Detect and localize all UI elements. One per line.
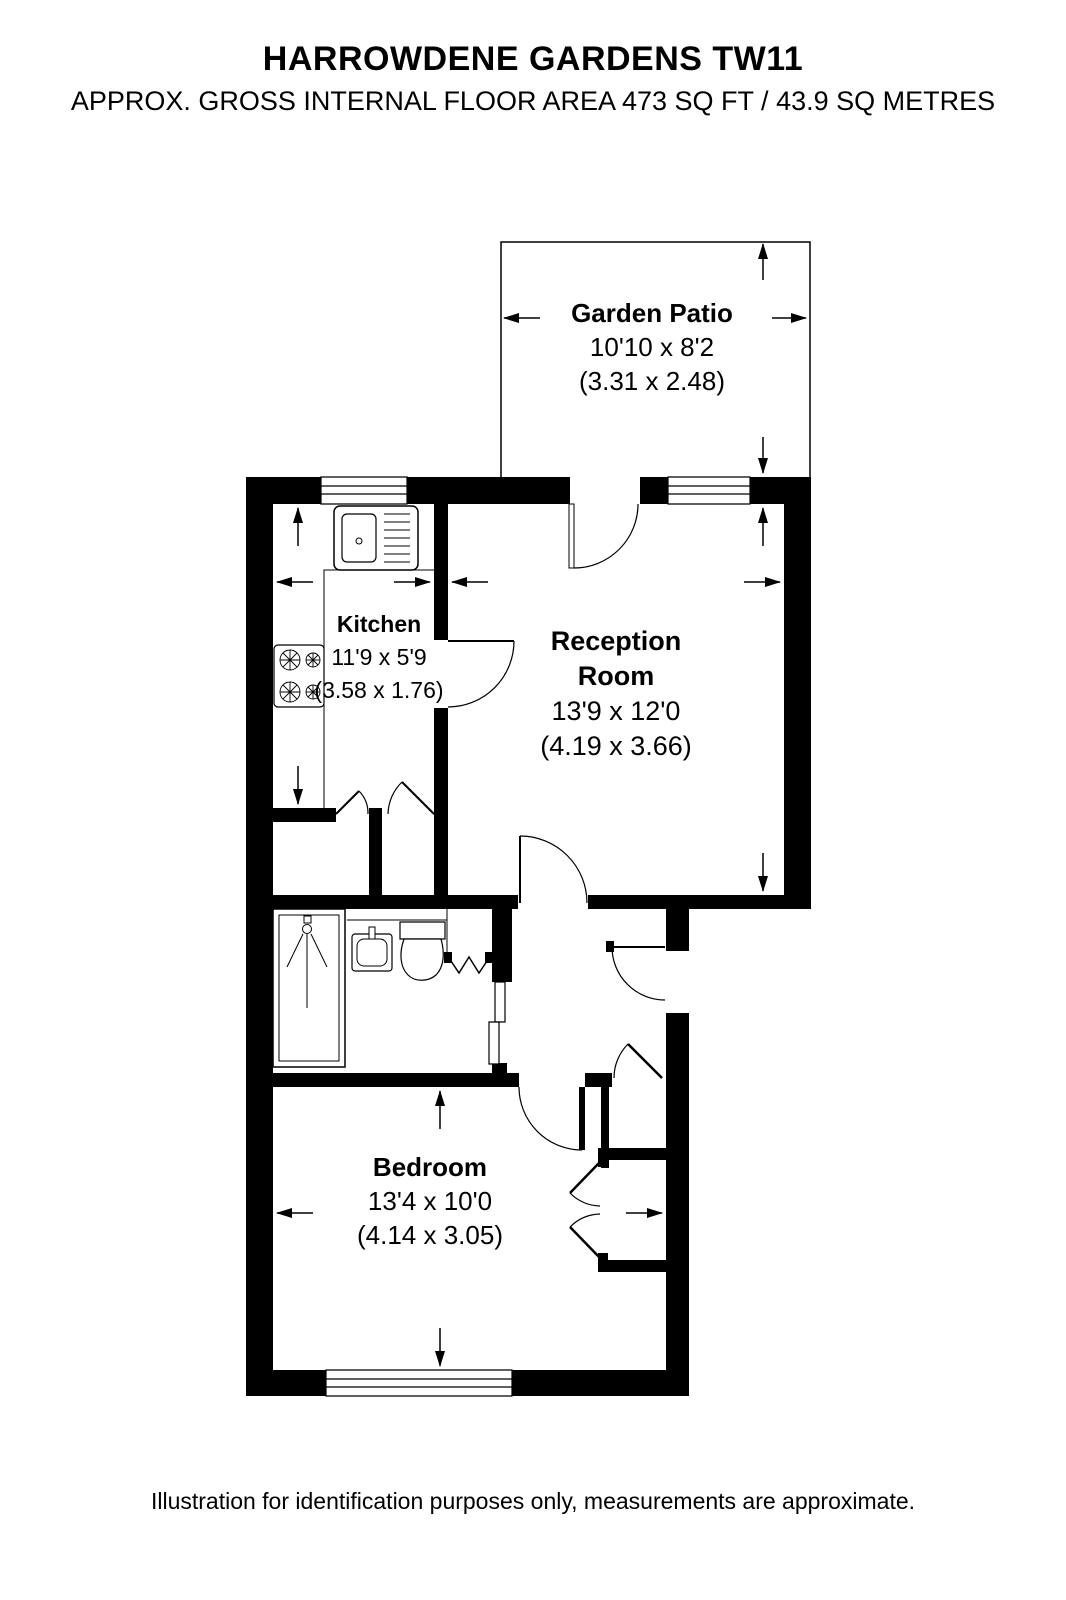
hall-cupboard-door — [614, 1044, 662, 1078]
kitchen-sink-icon — [334, 506, 418, 570]
wardrobe-door-lower — [570, 1214, 600, 1258]
wash-basin-icon — [352, 927, 392, 971]
bedroom-size-ft: 13'4 x 10'0 — [357, 1184, 503, 1218]
bedroom-window — [326, 1370, 512, 1396]
kitchen-cupboard-door-left — [336, 791, 368, 814]
front-door — [612, 947, 665, 1000]
wardrobe-door-upper — [570, 1162, 600, 1206]
room-label-kitchen: Kitchen 11'9 x 5'9 (3.58 x 1.76) — [269, 608, 489, 707]
hall-reception-door — [520, 836, 587, 903]
garden-patio-size-ft: 10'10 x 8'2 — [571, 330, 733, 364]
kitchen-name: Kitchen — [269, 608, 489, 641]
toilet-icon — [400, 922, 445, 980]
kitchen-window — [321, 477, 407, 504]
kitchen-size-ft: 11'9 x 5'9 — [269, 641, 489, 674]
garden-patio-size-m: (3.31 x 2.48) — [571, 364, 733, 398]
bathroom-bifold-door — [447, 909, 489, 973]
garden-patio-name: Garden Patio — [571, 296, 733, 330]
reception-room-size-ft: 13'9 x 12'0 — [524, 694, 709, 729]
reception-room-size-m: (4.19 x 3.66) — [524, 729, 709, 764]
disclaimer-text: Illustration for identification purposes… — [0, 1488, 1066, 1515]
bedroom-name: Bedroom — [357, 1150, 503, 1184]
reception-room-name: Reception Room — [524, 624, 709, 694]
kitchen-size-m: (3.58 x 1.76) — [269, 674, 489, 707]
bathroom-sliding-door — [489, 982, 505, 1064]
room-label-reception-room: Reception Room 13'9 x 12'0 (4.19 x 3.66) — [524, 624, 709, 764]
kitchen-cupboard-door-right — [388, 782, 434, 814]
room-label-garden-patio: Garden Patio 10'10 x 8'2 (3.31 x 2.48) — [571, 296, 733, 398]
bedroom-size-m: (4.14 x 3.05) — [357, 1218, 503, 1252]
bedroom-door — [519, 1087, 582, 1150]
shower-icon — [273, 909, 345, 1067]
reception-window — [668, 477, 750, 504]
patio-door — [569, 504, 638, 568]
floorplan-drawing — [0, 0, 1066, 1600]
floorplan-sheet: HARROWDENE GARDENS TW11 APPROX. GROSS IN… — [0, 0, 1066, 1600]
room-label-bedroom: Bedroom 13'4 x 10'0 (4.14 x 3.05) — [357, 1150, 503, 1252]
